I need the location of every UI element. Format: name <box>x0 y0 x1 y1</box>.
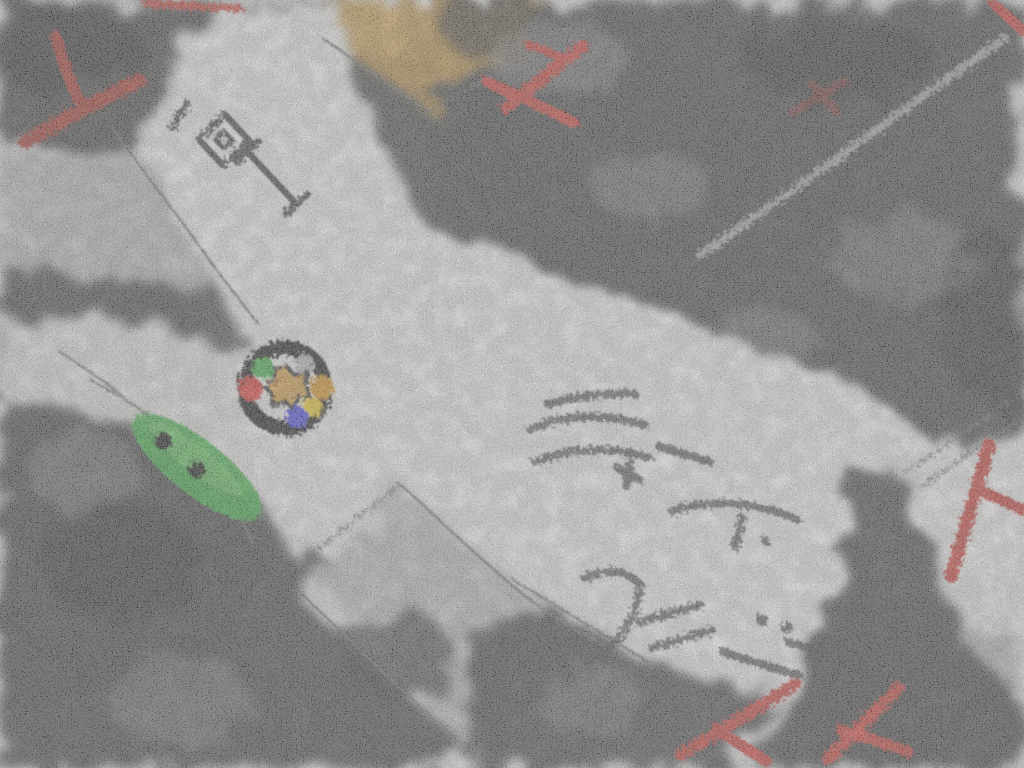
paper-grain <box>0 0 1024 768</box>
map-drawing <box>0 0 1024 768</box>
light-speckle-layer <box>0 0 1024 768</box>
sketch-map-canvas: 1丁目 (illegible handwritten scribble alon… <box>0 0 1024 768</box>
